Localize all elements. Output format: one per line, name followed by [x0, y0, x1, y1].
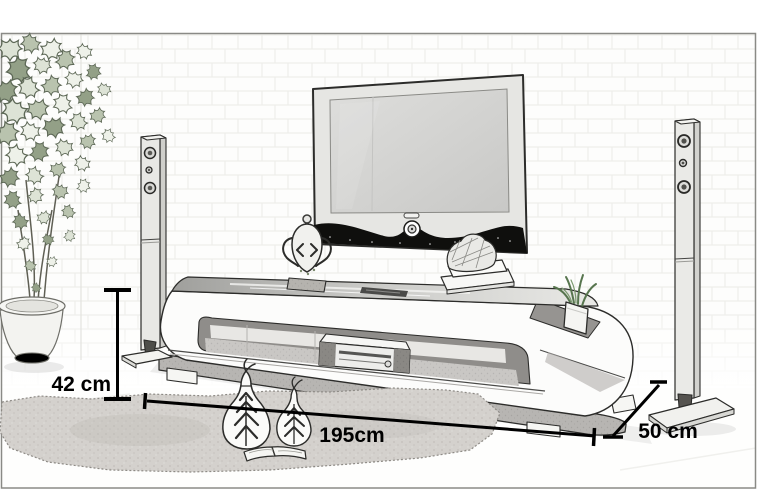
height-dimension-label: 42 cm — [51, 373, 111, 396]
furniture-dimension-sketch: .lf1{fill:#dde3d6}.lf2{fill:#b9c3ae}.lf3… — [0, 0, 757, 500]
tv — [313, 75, 527, 253]
depth-dimension-label: 50 cm — [638, 420, 698, 443]
tv-logo-pill — [404, 213, 419, 218]
sketch-canvas: .lf1{fill:#dde3d6}.lf2{fill:#b9c3ae}.lf3… — [0, 0, 757, 500]
player-knob — [385, 361, 391, 367]
width-dimension-label: 195cm — [319, 424, 384, 447]
